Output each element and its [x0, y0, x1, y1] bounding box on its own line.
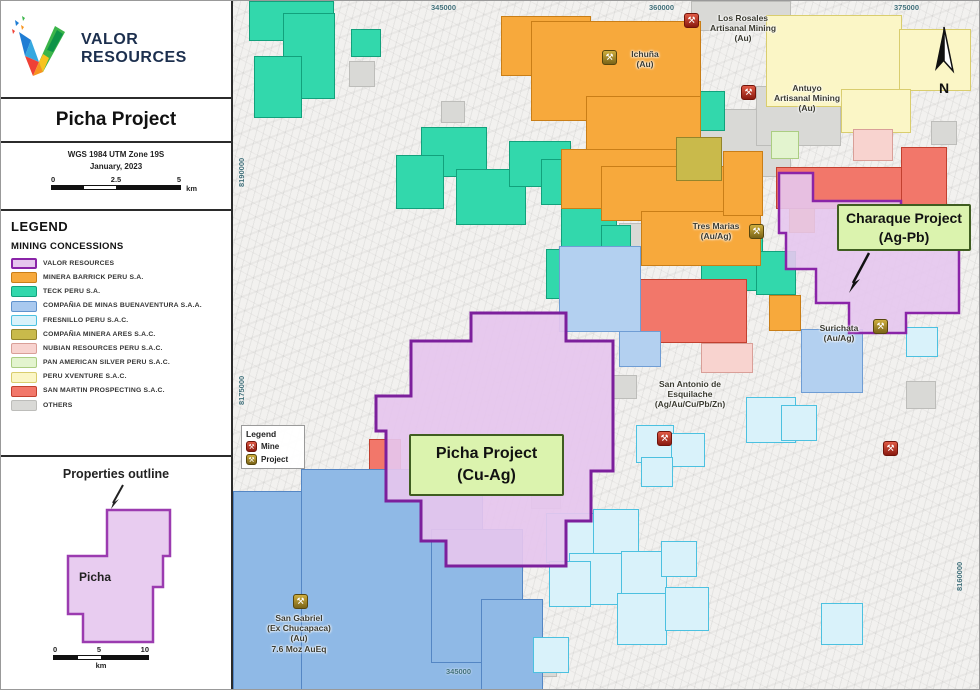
concession-block — [771, 131, 799, 159]
label-line: Esquilache — [631, 389, 749, 399]
label-line: Ichuña — [619, 49, 671, 59]
legend-label: SAN MARTIN PROSPECTING S.A.C. — [43, 387, 165, 394]
inset-scalebar: 0 5 10 km — [53, 645, 149, 670]
coordinate-bottom-0: 345000 — [446, 667, 471, 676]
concession-block — [776, 167, 904, 209]
legend-swatch — [11, 329, 37, 340]
label-line: Artisanal Mining — [759, 93, 855, 103]
main-scalebar: 0 2.5 5 km — [51, 175, 181, 190]
legend-item: SAN MARTIN PROSPECTING S.A.C. — [11, 386, 221, 397]
picha-label-line1: Picha Project — [411, 443, 562, 465]
legend-label: FRESNILLO PERU S.A.C. — [43, 317, 128, 324]
logo-box: VALOR RESOURCES — [1, 1, 231, 99]
label-line: (Ag/Au/Cu/Pb/Zn) — [631, 399, 749, 409]
side-panel: VALOR RESOURCES Picha Project WGS 1984 U… — [1, 1, 233, 690]
concession-block — [671, 433, 705, 467]
inset-scale-end: 10 — [141, 645, 149, 654]
date-text: January, 2023 — [1, 161, 231, 173]
concession-block — [756, 251, 796, 295]
concession-block — [931, 121, 957, 145]
inset-scale-start: 0 — [53, 645, 57, 654]
legend-subheading: MINING CONCESSIONS — [11, 241, 221, 252]
concession-block — [901, 147, 947, 211]
brand-line-2: RESOURCES — [81, 49, 187, 67]
legend-swatch — [11, 272, 37, 283]
picha-label-line2: (Cu-Ag) — [411, 465, 562, 487]
legend-label: PERU XVENTURE S.A.C. — [43, 373, 127, 380]
title-box: Picha Project — [1, 99, 231, 143]
legend-swatch — [11, 315, 37, 326]
legend-label: VALOR RESOURCES — [43, 260, 114, 267]
label-line: Tres Marias — [685, 221, 747, 231]
legend-item: PAN AMERICAN SILVER PERU S.A.C. — [11, 357, 221, 368]
project-icon: ⚒ — [749, 224, 764, 239]
charaque-pointer-arrow — [841, 251, 877, 297]
legend-label: MINERA BARRICK PERU S.A. — [43, 274, 143, 281]
legend-label: TECK PERU S.A. — [43, 288, 100, 295]
coordinate-left-0: 8190000 — [237, 158, 246, 187]
legend-swatch — [11, 301, 37, 312]
brand-name: VALOR RESOURCES — [81, 31, 187, 68]
mine-icon: ⚒ — [246, 441, 257, 452]
map-figure: VALOR RESOURCES Picha Project WGS 1984 U… — [0, 0, 980, 690]
concession-block — [619, 331, 661, 367]
label-line: (Au/Ag) — [807, 333, 871, 343]
concession-block — [349, 61, 375, 87]
legend-heading: LEGEND — [11, 219, 221, 234]
coordinate-right-0: 8160000 — [955, 562, 964, 591]
projection-text: WGS 1984 UTM Zone 19S — [1, 149, 231, 161]
legend-swatch — [11, 286, 37, 297]
concession-block — [593, 509, 639, 555]
legend-item: VALOR RESOURCES — [11, 258, 221, 269]
north-arrow: N — [931, 25, 957, 96]
scale-end: 5 — [177, 175, 181, 184]
label-line: 7.6 Moz AuEq — [249, 644, 349, 654]
page-title: Picha Project — [56, 109, 176, 131]
concession-block — [853, 129, 893, 161]
concession-block — [676, 137, 722, 181]
concession-block — [396, 155, 444, 209]
scale-unit: km — [186, 184, 197, 193]
north-arrow-icon — [932, 25, 956, 75]
mini-legend-mine-row: ⚒ Mine — [246, 441, 300, 452]
legend-label: COMPAÑIA MINERA ARES S.A.C. — [43, 331, 156, 338]
scalebar-graphic — [51, 185, 181, 190]
label-line: (Au) — [759, 103, 855, 113]
concession-block — [821, 603, 863, 645]
legend-box: LEGEND MINING CONCESSIONS VALOR RESOURCE… — [1, 211, 231, 457]
mini-legend-title: Legend — [246, 429, 300, 439]
coordinate-top-1: 360000 — [649, 3, 674, 12]
label-line: Los Rosales — [688, 13, 798, 23]
legend-swatch — [11, 357, 37, 368]
brand-line-1: VALOR — [81, 31, 187, 49]
valor-logo-icon — [9, 10, 73, 88]
inset-scalebar-graphic — [53, 655, 149, 660]
label-antuyo: AntuyoArtisanal Mining(Au) — [759, 83, 855, 114]
label-line: (Au) — [688, 33, 798, 43]
label-san-antonio: San Antonio deEsquilache(Ag/Au/Cu/Pb/Zn) — [631, 379, 749, 410]
legend-swatch — [11, 372, 37, 383]
legend-item: FRESNILLO PERU S.A.C. — [11, 315, 221, 326]
picha-project-label: Picha Project (Cu-Ag) — [409, 434, 564, 496]
legend-swatch — [11, 400, 37, 411]
projection-box: WGS 1984 UTM Zone 19S January, 2023 0 2.… — [1, 143, 231, 211]
label-line: Surichata — [807, 323, 871, 333]
legend-swatch — [11, 258, 37, 269]
inset-scale-unit: km — [53, 661, 149, 670]
label-ichuna: Ichuña(Au) — [619, 49, 671, 69]
mine-icon: ⚒ — [883, 441, 898, 456]
legend-item: OTHERS — [11, 400, 221, 411]
project-icon: ⚒ — [293, 594, 308, 609]
label-line: (Au/Ag) — [685, 231, 747, 241]
coordinate-top-0: 345000 — [431, 3, 456, 12]
concession-block — [641, 457, 673, 487]
charaque-project-label: Charaque Project (Ag-Pb) — [837, 204, 971, 251]
mine-icon: ⚒ — [657, 431, 672, 446]
label-tres-marias: Tres Marias(Au/Ag) — [685, 221, 747, 241]
concession-block — [661, 541, 697, 577]
concession-block — [781, 405, 817, 441]
mine-icon: ⚒ — [741, 85, 756, 100]
label-surichata: Surichata(Au/Ag) — [807, 323, 871, 343]
concession-block — [549, 561, 591, 607]
concession-block — [906, 327, 938, 357]
project-icon: ⚒ — [873, 319, 888, 334]
mine-icon: ⚒ — [684, 13, 699, 28]
legend-item: NUBIAN RESOURCES PERU S.A.C. — [11, 343, 221, 354]
scale-start: 0 — [51, 175, 55, 184]
charaque-label-line2: (Ag-Pb) — [839, 228, 969, 247]
inset-scale-mid: 5 — [97, 645, 101, 654]
concession-block — [769, 295, 801, 331]
project-icon: ⚒ — [246, 454, 257, 465]
inset-picha-label: Picha — [79, 570, 111, 584]
label-san-gabriel: San Gabriel(Ex Chucapaca)(Au)7.6 Moz AuE… — [249, 613, 349, 654]
label-line: Artisanal Mining — [688, 23, 798, 33]
legend-item: TECK PERU S.A. — [11, 286, 221, 297]
mini-legend-project-row: ⚒ Project — [246, 454, 300, 465]
main-map[interactable]: Los RosalesArtisanal Mining(Au)AntuyoArt… — [233, 1, 980, 690]
concession-block — [906, 381, 936, 409]
map-mini-legend: Legend ⚒ Mine ⚒ Project — [241, 425, 305, 469]
concession-block — [723, 151, 763, 216]
legend-label: OTHERS — [43, 402, 73, 409]
concession-block — [617, 593, 667, 645]
legend-item: COMPAÑIA DE MINAS BUENAVENTURA S.A.A. — [11, 301, 221, 312]
label-line: (Au) — [619, 59, 671, 69]
legend-item: PERU XVENTURE S.A.C. — [11, 372, 221, 383]
concession-block — [351, 29, 381, 57]
legend-list: VALOR RESOURCESMINERA BARRICK PERU S.A.T… — [11, 258, 221, 411]
coordinate-top-2: 375000 — [894, 3, 919, 12]
concession-block — [559, 246, 641, 332]
legend-swatch — [11, 343, 37, 354]
project-icon: ⚒ — [602, 50, 617, 65]
coordinate-left-1: 8175000 — [237, 376, 246, 405]
north-letter: N — [931, 80, 957, 96]
inset-map: Properties outline Picha 0 5 10 km — [1, 457, 231, 687]
label-line: San Gabriel — [249, 613, 349, 623]
charaque-label-line1: Charaque Project — [839, 209, 969, 228]
legend-item: MINERA BARRICK PERU S.A. — [11, 272, 221, 283]
legend-swatch — [11, 386, 37, 397]
label-line: San Antonio de — [631, 379, 749, 389]
concession-block — [665, 587, 709, 631]
concession-block — [254, 56, 302, 118]
concession-block — [533, 637, 569, 673]
legend-label: NUBIAN RESOURCES PERU S.A.C. — [43, 345, 163, 352]
mine-label: Mine — [261, 442, 279, 451]
label-line: Antuyo — [759, 83, 855, 93]
label-line: (Au) — [249, 633, 349, 643]
project-label: Project — [261, 455, 288, 464]
concession-block — [441, 101, 465, 123]
legend-label: COMPAÑIA DE MINAS BUENAVENTURA S.A.A. — [43, 302, 202, 309]
legend-label: PAN AMERICAN SILVER PERU S.A.C. — [43, 359, 170, 366]
scale-mid: 2.5 — [111, 175, 121, 184]
legend-item: COMPAÑIA MINERA ARES S.A.C. — [11, 329, 221, 340]
concession-block — [701, 343, 753, 373]
label-line: (Ex Chucapaca) — [249, 623, 349, 633]
label-los-rosales: Los RosalesArtisanal Mining(Au) — [688, 13, 798, 44]
